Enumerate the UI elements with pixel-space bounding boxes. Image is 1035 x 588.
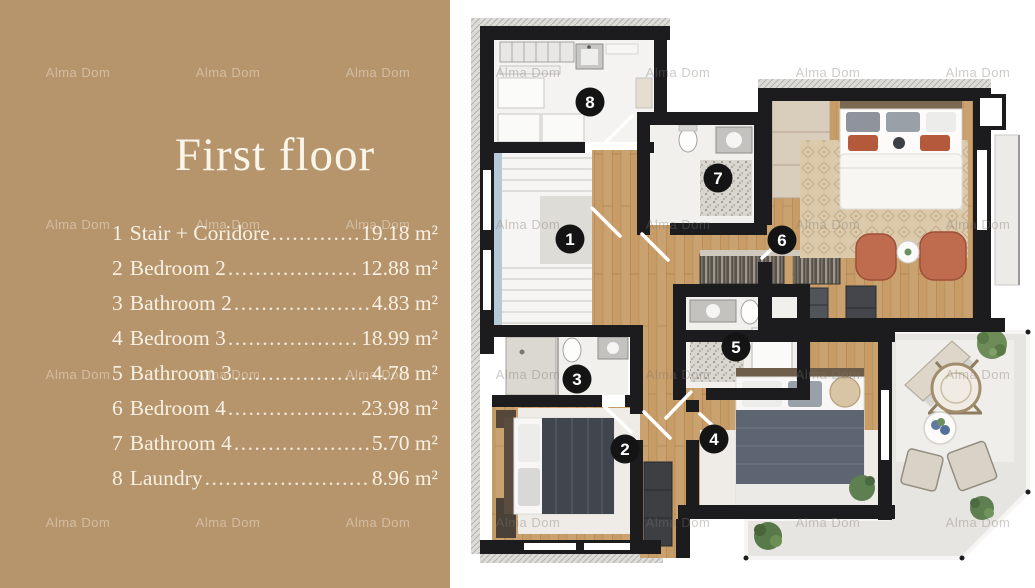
legend-area: 12.88 m² bbox=[361, 251, 438, 286]
room-legend: 1 Stair + Coridore 19.18 m² 2 Bedroom 2 … bbox=[112, 216, 438, 496]
svg-text:7: 7 bbox=[713, 169, 722, 188]
legend-area: 8.96 m² bbox=[372, 461, 438, 496]
legend-dots bbox=[272, 216, 358, 251]
svg-text:8: 8 bbox=[585, 93, 594, 112]
legend-number: 3 bbox=[112, 286, 123, 321]
legend-number: 2 bbox=[112, 251, 123, 286]
legend-number: 8 bbox=[112, 461, 123, 496]
balcony bbox=[995, 135, 1019, 285]
legend-room-name: Bedroom 2 bbox=[130, 251, 226, 286]
terrace-plant bbox=[754, 522, 782, 550]
legend-number: 5 bbox=[112, 356, 123, 391]
legend-row: 5 Bathroom 3 4.78 m² bbox=[112, 356, 438, 391]
legend-dots bbox=[205, 461, 369, 496]
room-badge-bedroom-4: 6 bbox=[768, 226, 797, 255]
legend-area: 5.70 m² bbox=[372, 426, 438, 461]
floorplan-sheet: First floor 1 Stair + Coridore 19.18 m² … bbox=[0, 0, 1035, 588]
legend-area: 19.18 m² bbox=[361, 216, 438, 251]
legend-dots bbox=[234, 356, 369, 391]
page-title: First floor bbox=[112, 128, 438, 182]
side-table bbox=[830, 377, 860, 407]
legend-area: 23.98 m² bbox=[361, 391, 438, 426]
shaft bbox=[980, 98, 1002, 126]
svg-text:3: 3 bbox=[572, 370, 581, 389]
svg-text:6: 6 bbox=[777, 231, 786, 250]
legend-dots bbox=[234, 426, 369, 461]
terrace-plant bbox=[970, 496, 994, 520]
legend-row: 4 Bedroom 3 18.99 m² bbox=[112, 321, 438, 356]
legend-room-name: Bathroom 2 bbox=[130, 286, 232, 321]
room-badge-bathroom-2: 3 bbox=[563, 365, 592, 394]
terrace-tree bbox=[977, 329, 1007, 359]
svg-text:5: 5 bbox=[731, 338, 740, 357]
legend-dots bbox=[228, 321, 358, 356]
legend-row: 3 Bathroom 2 4.83 m² bbox=[112, 286, 438, 321]
legend-number: 1 bbox=[112, 216, 123, 251]
svg-text:4: 4 bbox=[709, 430, 719, 449]
legend-room-name: Bedroom 3 bbox=[130, 321, 226, 356]
legend-dots bbox=[234, 286, 369, 321]
bedroom3-plant bbox=[849, 475, 875, 501]
legend-room-name: Stair + Coridore bbox=[130, 216, 270, 251]
room-badge-stair-corridor: 1 bbox=[556, 225, 585, 254]
legend-row: 8 Laundry 8.96 m² bbox=[112, 461, 438, 496]
legend-room-name: Bedroom 4 bbox=[130, 391, 226, 426]
legend-room-name: Bathroom 4 bbox=[130, 426, 232, 461]
legend-number: 6 bbox=[112, 391, 123, 426]
legend-row: 1 Stair + Coridore 19.18 m² bbox=[112, 216, 438, 251]
legend-room-name: Laundry bbox=[130, 461, 203, 496]
legend-dots bbox=[228, 391, 358, 426]
legend-row: 2 Bedroom 2 12.88 m² bbox=[112, 251, 438, 286]
room-badge-bathroom-3: 5 bbox=[722, 333, 751, 362]
legend-row: 7 Bathroom 4 5.70 m² bbox=[112, 426, 438, 461]
room-badge-bedroom-2: 2 bbox=[611, 435, 640, 464]
room-badge-bathroom-4: 7 bbox=[704, 164, 733, 193]
room-badge-laundry: 8 bbox=[576, 88, 605, 117]
terrace-table bbox=[924, 412, 956, 444]
room-badge-bedroom-3: 4 bbox=[700, 425, 729, 454]
legend-row: 6 Bedroom 4 23.98 m² bbox=[112, 391, 438, 426]
legend-room-name: Bathroom 3 bbox=[130, 356, 232, 391]
legend-area: 4.83 m² bbox=[372, 286, 438, 321]
svg-text:2: 2 bbox=[620, 440, 629, 459]
bedroom4-furniture bbox=[772, 100, 968, 280]
legend-area: 18.99 m² bbox=[361, 321, 438, 356]
legend-dots bbox=[228, 251, 358, 286]
floor-plan: 12345678 bbox=[450, 0, 1035, 588]
dresser bbox=[644, 462, 672, 546]
legend-area: 4.78 m² bbox=[372, 356, 438, 391]
svg-text:1: 1 bbox=[565, 230, 574, 249]
legend-number: 4 bbox=[112, 321, 123, 356]
info-panel: First floor 1 Stair + Coridore 19.18 m² … bbox=[0, 0, 450, 588]
legend-number: 7 bbox=[112, 426, 123, 461]
ottoman bbox=[900, 448, 944, 492]
